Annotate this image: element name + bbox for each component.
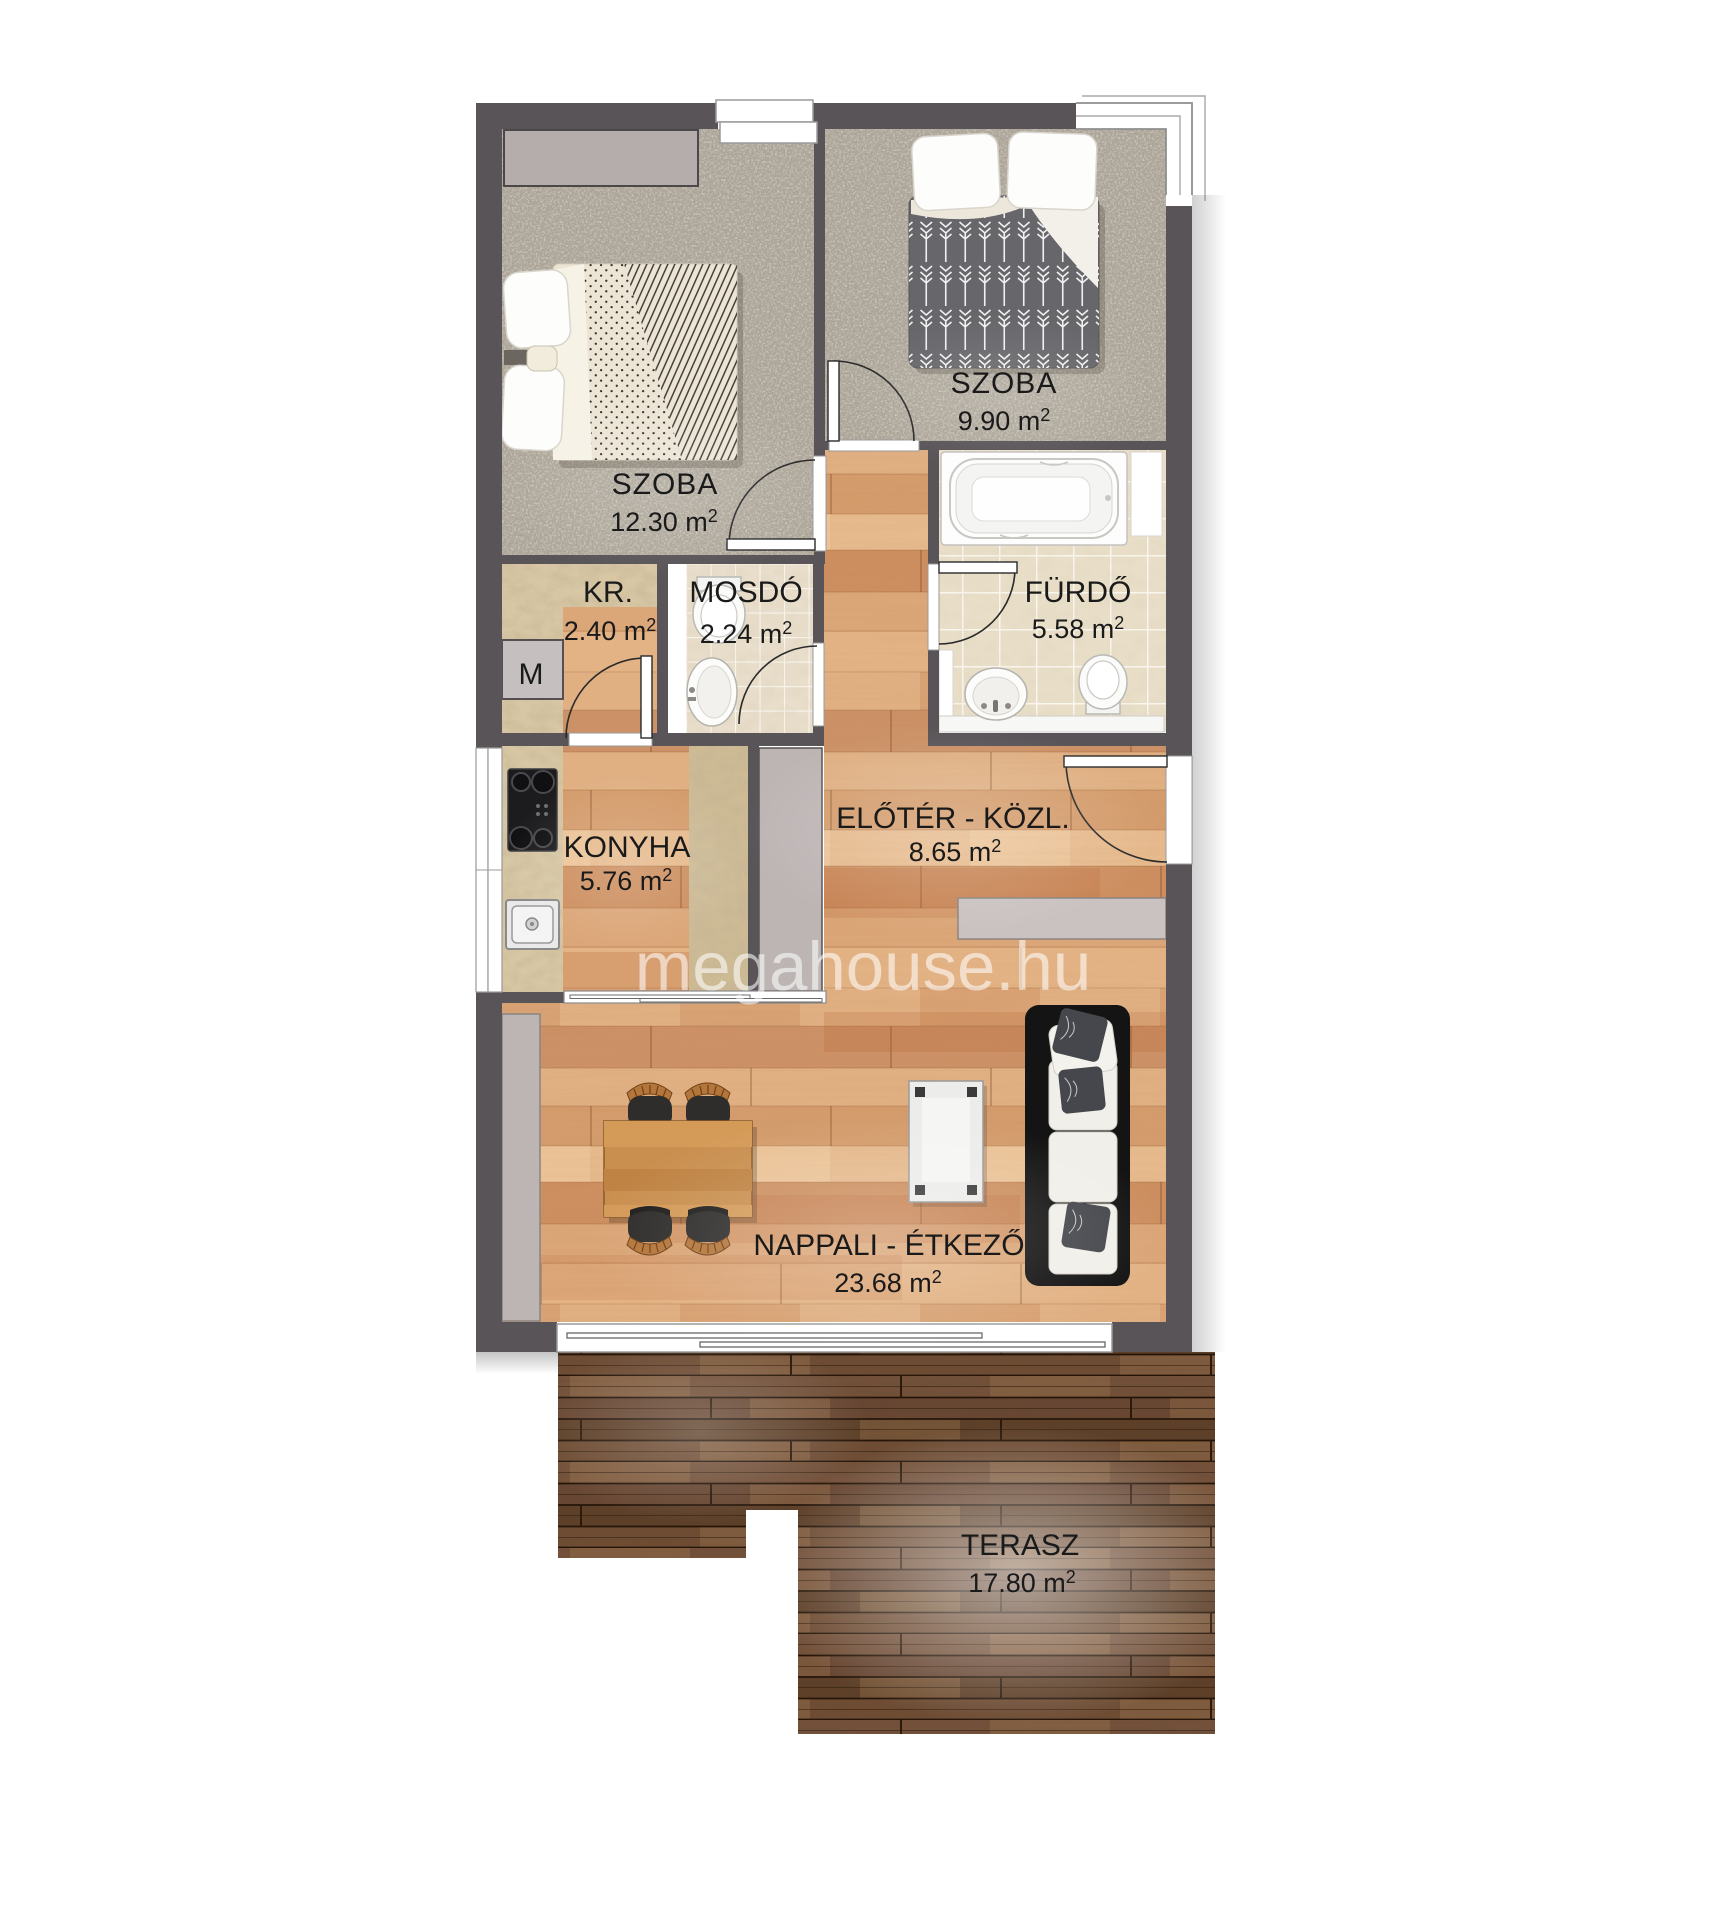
svg-text:megahouse.hu: megahouse.hu <box>635 928 1092 1005</box>
svg-text:KR.: KR. <box>583 576 633 609</box>
svg-text:8.65 m2: 8.65 m2 <box>909 836 1002 867</box>
svg-text:ELŐTÉR - KÖZL.: ELŐTÉR - KÖZL. <box>836 802 1069 835</box>
svg-text:5.58 m2: 5.58 m2 <box>1032 613 1125 644</box>
svg-text:SZOBA: SZOBA <box>612 468 719 501</box>
svg-text:17.80 m2: 17.80 m2 <box>968 1567 1076 1598</box>
svg-text:TERASZ: TERASZ <box>961 1529 1079 1562</box>
svg-text:MOSDÓ: MOSDÓ <box>689 576 802 609</box>
svg-text:2.24 m2: 2.24 m2 <box>700 618 793 649</box>
svg-text:2.40 m2: 2.40 m2 <box>564 615 657 646</box>
svg-text:12.30 m2: 12.30 m2 <box>610 506 718 537</box>
svg-text:23.68 m2: 23.68 m2 <box>834 1267 942 1298</box>
svg-text:FÜRDŐ: FÜRDŐ <box>1025 576 1132 609</box>
svg-text:NAPPALI - ÉTKEZŐ: NAPPALI - ÉTKEZŐ <box>753 1229 1024 1262</box>
svg-text:9.90 m2: 9.90 m2 <box>958 405 1051 436</box>
svg-text:M: M <box>519 658 544 691</box>
svg-text:5.76 m2: 5.76 m2 <box>580 865 673 896</box>
svg-text:SZOBA: SZOBA <box>951 367 1058 400</box>
svg-text:KONYHA: KONYHA <box>564 831 691 864</box>
